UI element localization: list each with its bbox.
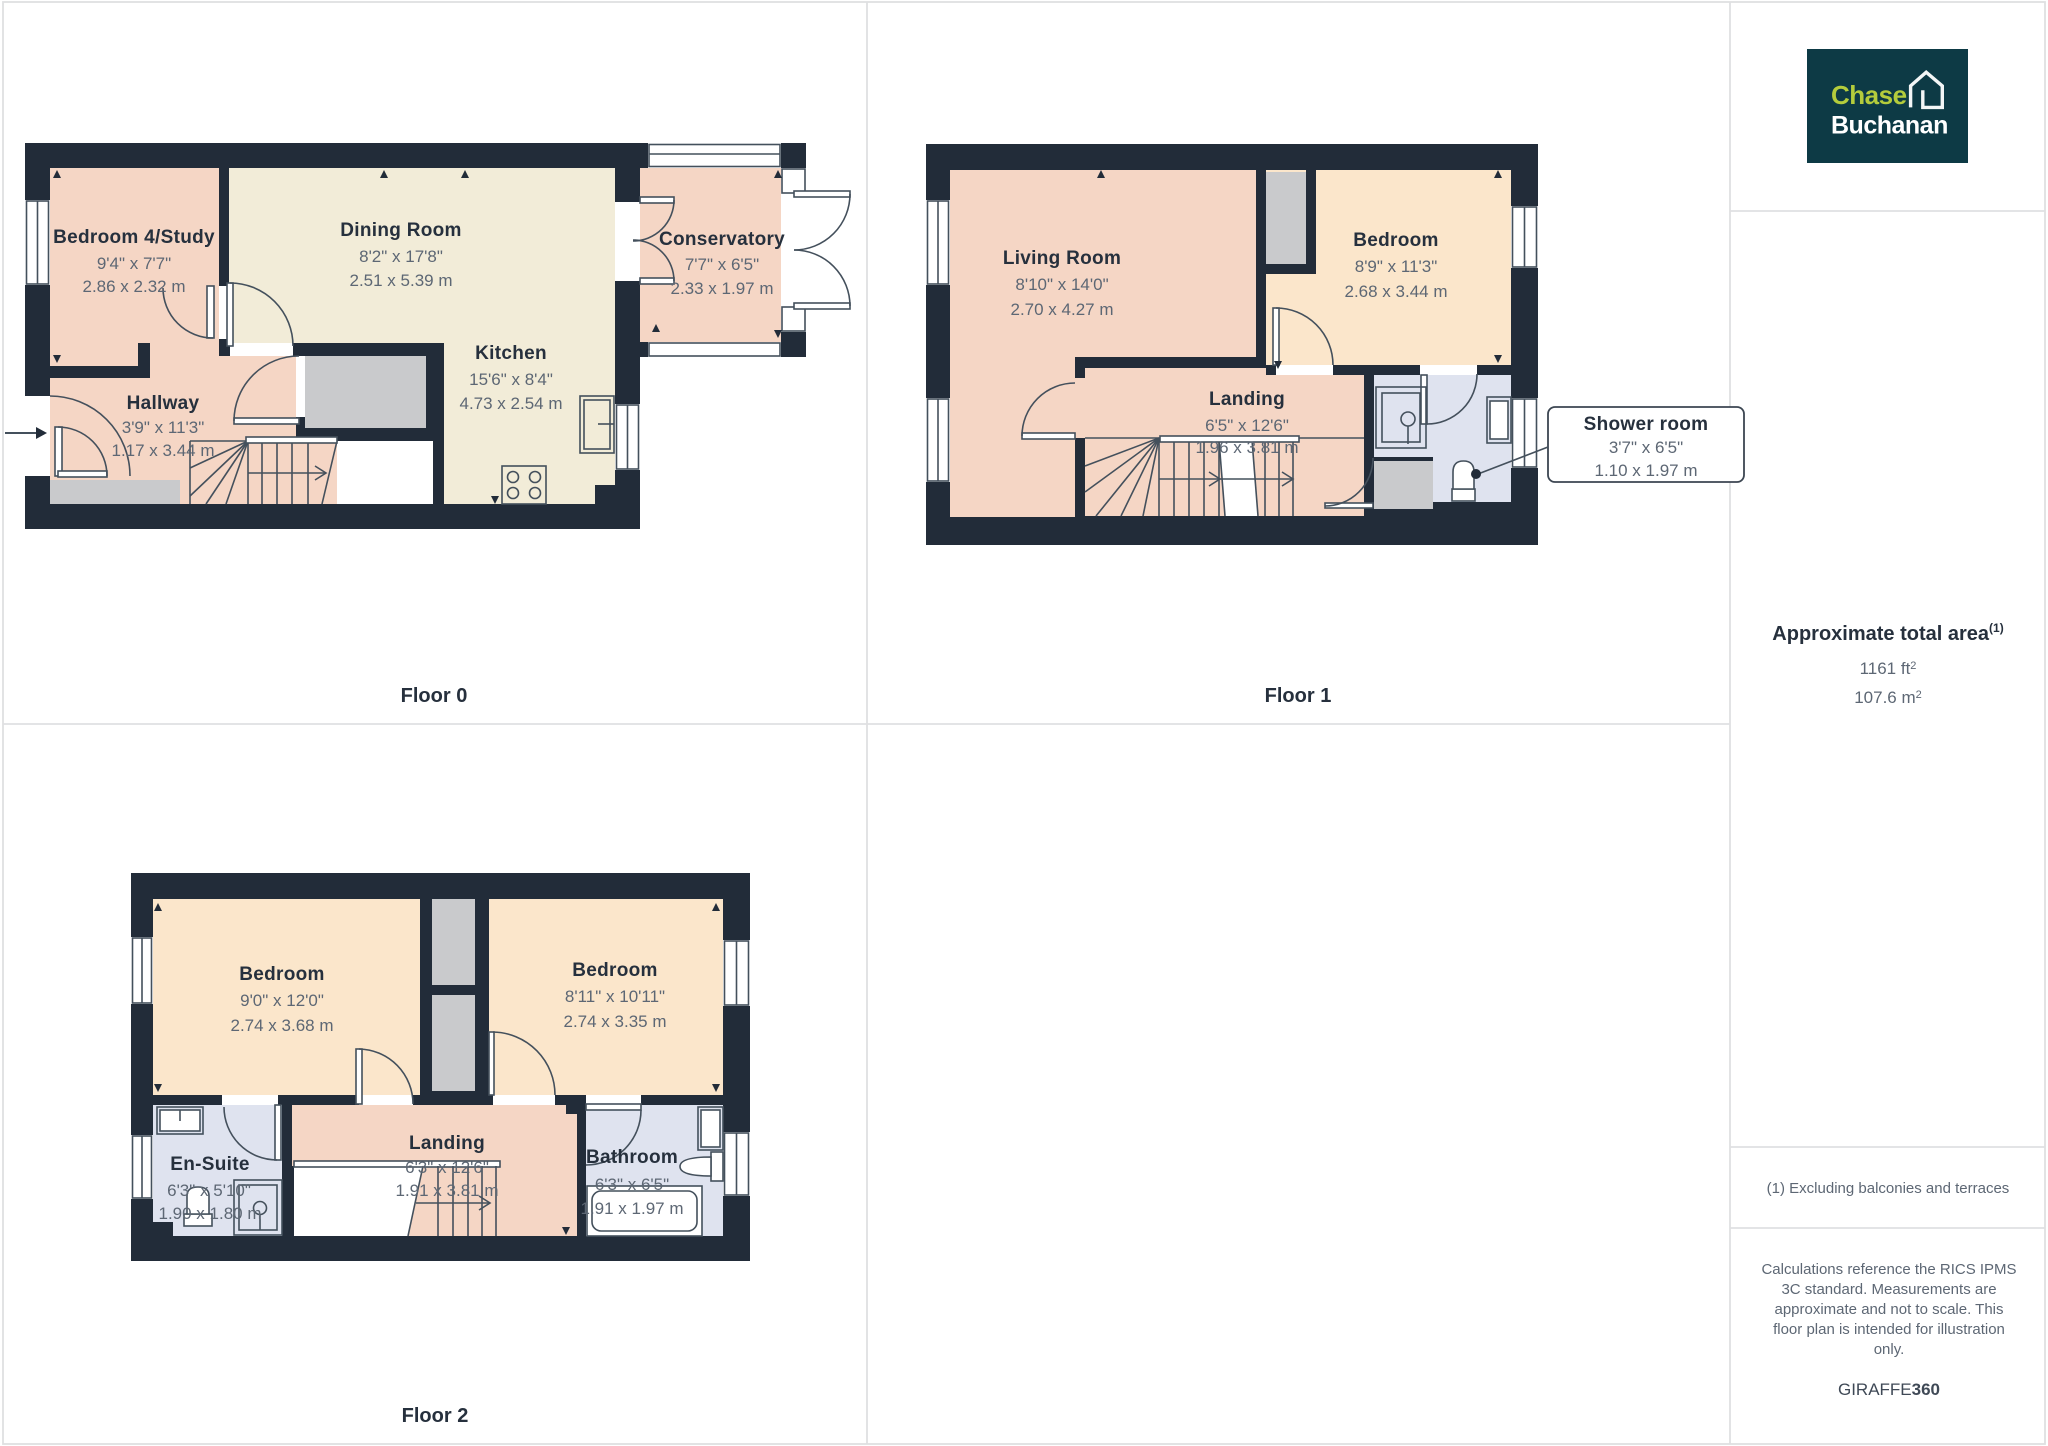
svg-text:Calculations reference the RIC: Calculations reference the RICS IPMS <box>1761 1261 2016 1278</box>
svg-text:only.: only. <box>1874 1341 1905 1358</box>
svg-text:1.96 x 3.81 m: 1.96 x 3.81 m <box>1195 438 1298 457</box>
svg-text:Hallway: Hallway <box>127 393 200 414</box>
svg-text:2.74 x 3.68 m: 2.74 x 3.68 m <box>230 1016 333 1035</box>
svg-text:Approximate total area(1): Approximate total area(1) <box>1772 621 2003 645</box>
svg-text:Living Room: Living Room <box>1003 248 1121 269</box>
svg-text:107.6 m2: 107.6 m2 <box>1854 688 1922 707</box>
svg-text:Conservatory: Conservatory <box>659 229 785 250</box>
svg-text:1.91 x 1.97 m: 1.91 x 1.97 m <box>580 1199 683 1218</box>
svg-text:En-Suite: En-Suite <box>170 1154 249 1175</box>
svg-text:1161 ft2: 1161 ft2 <box>1860 659 1917 678</box>
svg-text:Floor 1: Floor 1 <box>1265 685 1332 707</box>
svg-text:7'7" x 6'5": 7'7" x 6'5" <box>685 255 759 274</box>
svg-text:2.86 x 2.32 m: 2.86 x 2.32 m <box>82 277 185 296</box>
svg-text:(1) Excluding balconies and te: (1) Excluding balconies and terraces <box>1767 1180 2010 1197</box>
svg-text:8'2" x 17'8": 8'2" x 17'8" <box>359 247 443 266</box>
svg-text:2.51 x 5.39 m: 2.51 x 5.39 m <box>349 271 452 290</box>
svg-text:Bedroom 4/Study: Bedroom 4/Study <box>53 227 215 248</box>
svg-text:Bathroom: Bathroom <box>586 1147 678 1168</box>
svg-text:4.73 x 2.54 m: 4.73 x 2.54 m <box>459 394 562 413</box>
svg-text:Kitchen: Kitchen <box>475 343 547 364</box>
svg-text:2.33 x 1.97 m: 2.33 x 1.97 m <box>670 279 773 298</box>
svg-text:6'3" x 6'5": 6'3" x 6'5" <box>595 1175 669 1194</box>
svg-text:Floor 2: Floor 2 <box>402 1405 469 1427</box>
svg-text:Chase: Chase <box>1831 80 1907 110</box>
svg-text:GIRAFFE360: GIRAFFE360 <box>1838 1380 1940 1399</box>
svg-text:Landing: Landing <box>1209 389 1285 410</box>
svg-text:1.91 x 3.81 m: 1.91 x 3.81 m <box>395 1181 498 1200</box>
svg-text:1.17 x 3.44 m: 1.17 x 3.44 m <box>111 441 214 460</box>
svg-text:approximate and not to scale.: approximate and not to scale. This <box>1774 1301 2003 1318</box>
svg-text:Shower room: Shower room <box>1584 414 1709 435</box>
svg-text:1.90 x 1.80 m: 1.90 x 1.80 m <box>158 1204 261 1223</box>
svg-text:6'3" x 12'6": 6'3" x 12'6" <box>405 1158 489 1177</box>
svg-text:8'11" x 10'11": 8'11" x 10'11" <box>565 987 665 1006</box>
svg-text:9'4" x 7'7": 9'4" x 7'7" <box>97 254 171 273</box>
svg-text:6'5" x 12'6": 6'5" x 12'6" <box>1205 416 1289 435</box>
svg-text:Floor 0: Floor 0 <box>401 685 468 707</box>
svg-text:floor plan is intended for ill: floor plan is intended for illustration <box>1773 1321 2005 1338</box>
svg-text:Buchanan: Buchanan <box>1831 112 1948 140</box>
svg-text:8'9" x 11'3": 8'9" x 11'3" <box>1355 257 1438 276</box>
svg-text:2.70 x 4.27 m: 2.70 x 4.27 m <box>1010 300 1113 319</box>
svg-text:2.68 x 3.44 m: 2.68 x 3.44 m <box>1344 282 1447 301</box>
svg-text:1.10 x 1.97 m: 1.10 x 1.97 m <box>1594 461 1697 480</box>
svg-text:Bedroom: Bedroom <box>572 960 658 981</box>
svg-text:3C standard. Measurements are: 3C standard. Measurements are <box>1781 1281 1996 1298</box>
svg-text:8'10" x 14'0": 8'10" x 14'0" <box>1015 275 1108 294</box>
svg-text:3'7" x 6'5": 3'7" x 6'5" <box>1609 438 1683 457</box>
svg-text:Bedroom: Bedroom <box>239 964 325 985</box>
svg-text:15'6" x 8'4": 15'6" x 8'4" <box>469 370 553 389</box>
svg-text:Bedroom: Bedroom <box>1353 230 1439 251</box>
svg-text:Dining Room: Dining Room <box>340 220 462 241</box>
svg-text:2.74 x 3.35 m: 2.74 x 3.35 m <box>563 1012 666 1031</box>
svg-text:Landing: Landing <box>409 1133 485 1154</box>
svg-text:3'9" x 11'3": 3'9" x 11'3" <box>122 418 205 437</box>
svg-text:6'3" x 5'10": 6'3" x 5'10" <box>167 1181 251 1200</box>
svg-text:9'0" x 12'0": 9'0" x 12'0" <box>240 991 324 1010</box>
